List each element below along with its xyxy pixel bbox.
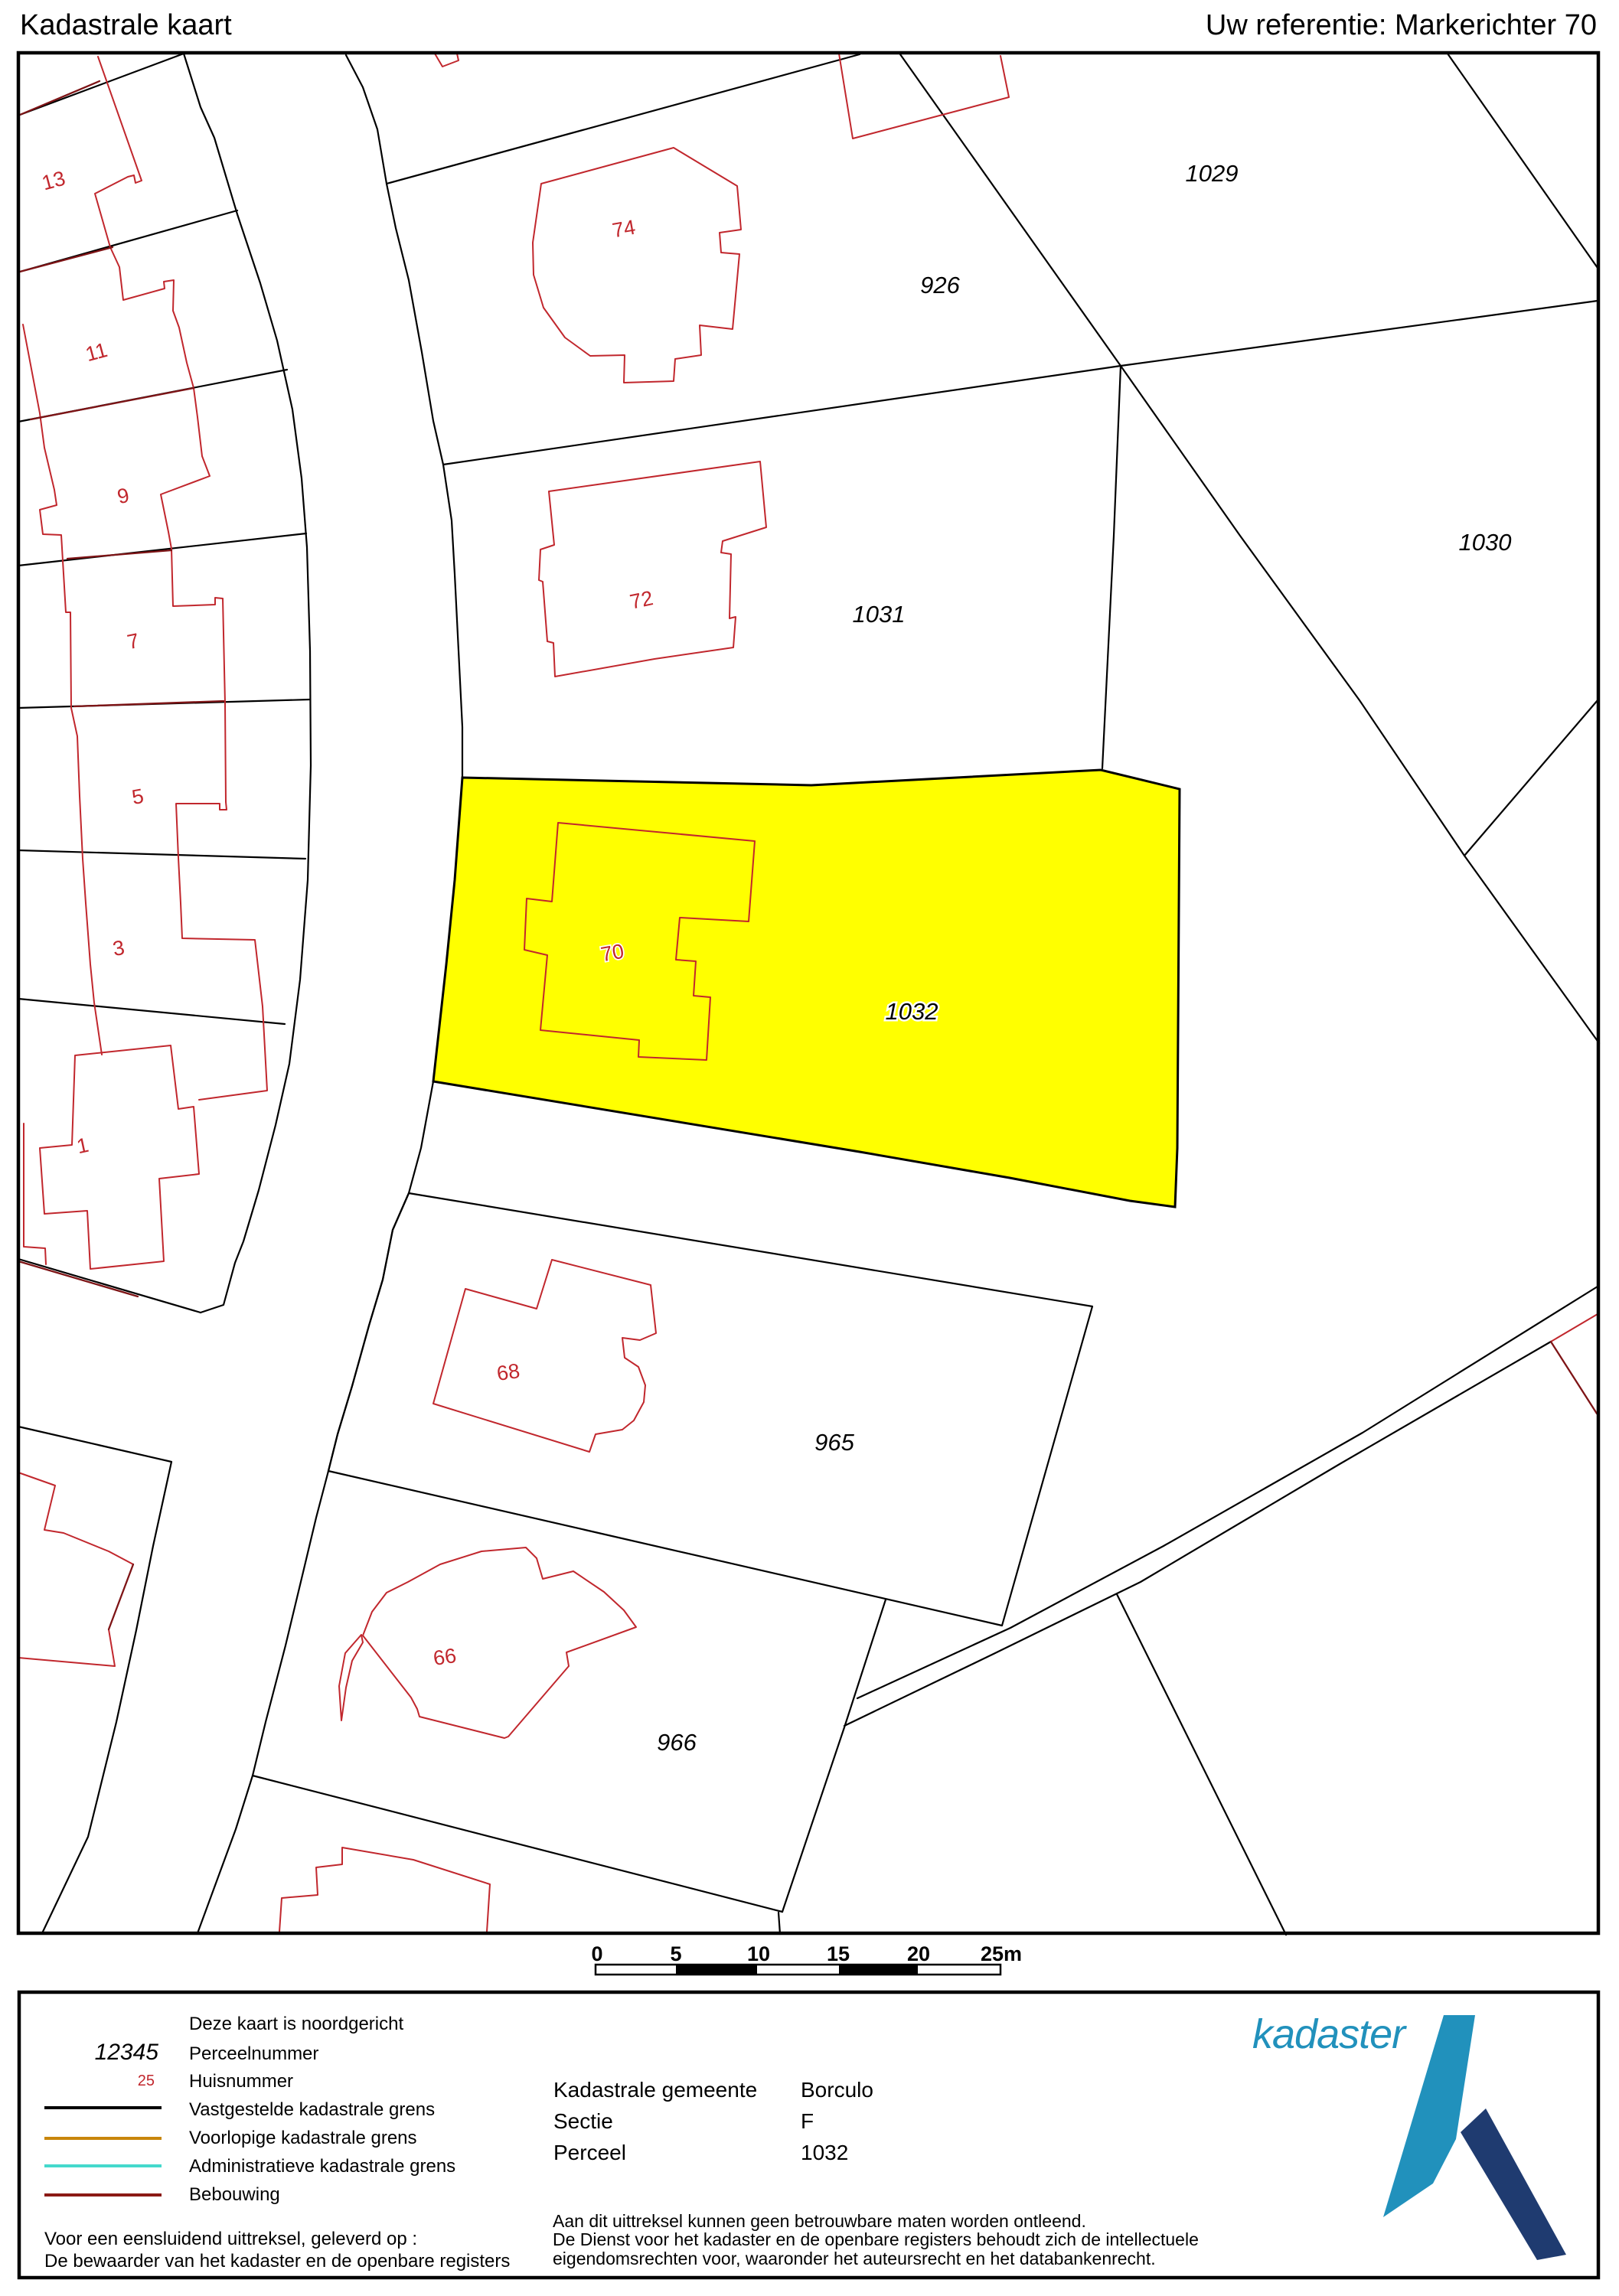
svg-text:74: 74: [611, 216, 638, 243]
svg-text:De Dienst voor het kadaster en: De Dienst voor het kadaster en de openba…: [553, 2229, 1199, 2249]
svg-text:15: 15: [827, 1942, 850, 1965]
svg-text:Aan dit uittreksel kunnen geen: Aan dit uittreksel kunnen geen betrouwba…: [553, 2211, 1086, 2231]
svg-text:68: 68: [495, 1359, 521, 1385]
svg-text:Deze kaart is noordgericht: Deze kaart is noordgericht: [189, 2014, 403, 2034]
svg-text:72: 72: [628, 586, 655, 614]
svg-text:1029: 1029: [1186, 160, 1239, 187]
svg-text:5: 5: [670, 1942, 681, 1965]
svg-text:Huisnummer: Huisnummer: [189, 2071, 293, 2092]
svg-text:Administratieve kadastrale gre: Administratieve kadastrale grens: [189, 2156, 455, 2177]
svg-text:Voor een eensluidend uittrekse: Voor een eensluidend uittreksel, gelever…: [44, 2229, 417, 2249]
svg-text:1030: 1030: [1459, 529, 1512, 556]
svg-text:Perceel: Perceel: [553, 2141, 626, 2164]
svg-text:965: 965: [814, 1429, 854, 1456]
svg-text:Borculo: Borculo: [801, 2078, 873, 2102]
svg-text:25m: 25m: [981, 1942, 1022, 1965]
svg-text:1032: 1032: [801, 2141, 848, 2164]
svg-text:eigendomsrechten voor, waarond: eigendomsrechten voor, waaronder het aut…: [553, 2249, 1156, 2268]
svg-text:66: 66: [432, 1644, 458, 1670]
svg-text:De bewaarder van het kadaster: De bewaarder van het kadaster en de open…: [44, 2251, 510, 2272]
svg-text:Voorlopige kadastrale grens: Voorlopige kadastrale grens: [189, 2128, 417, 2148]
svg-text:F: F: [801, 2109, 814, 2133]
svg-text:Sectie: Sectie: [553, 2109, 613, 2133]
svg-text:70: 70: [599, 940, 626, 967]
svg-text:1031: 1031: [853, 601, 906, 628]
svg-text:Bebouwing: Bebouwing: [189, 2184, 280, 2205]
svg-text:25: 25: [138, 2073, 155, 2089]
svg-text:966: 966: [657, 1729, 697, 1756]
svg-text:12345: 12345: [95, 2040, 159, 2065]
svg-text:20: 20: [907, 1942, 930, 1965]
svg-text:Kadastrale kaart: Kadastrale kaart: [20, 9, 232, 41]
svg-text:1032: 1032: [886, 998, 938, 1025]
svg-text:926: 926: [920, 272, 960, 298]
svg-text:Uw referentie: Markerichter 70: Uw referentie: Markerichter 70: [1206, 9, 1597, 41]
svg-text:kadaster: kadaster: [1252, 2011, 1407, 2057]
svg-text:10: 10: [747, 1942, 770, 1965]
svg-text:Kadastrale gemeente: Kadastrale gemeente: [553, 2078, 757, 2102]
svg-text:Vastgestelde kadastrale grens: Vastgestelde kadastrale grens: [189, 2099, 435, 2120]
svg-text:0: 0: [591, 1942, 602, 1965]
svg-text:Perceelnummer: Perceelnummer: [189, 2043, 318, 2064]
